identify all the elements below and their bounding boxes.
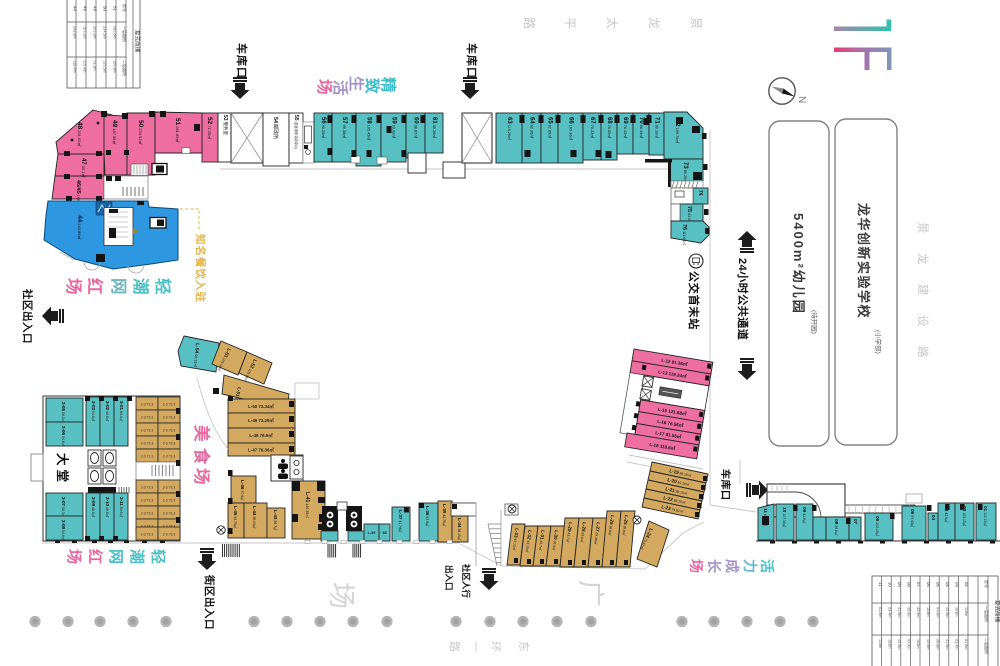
svg-text:东: 东: [517, 641, 530, 652]
svg-text:38: 38: [382, 531, 386, 535]
svg-text:潮: 潮: [128, 549, 146, 564]
svg-text:力: 力: [742, 559, 758, 573]
svg-text:龙华创新实验学校: 龙华创新实验学校: [856, 203, 871, 319]
svg-text:出入口: 出入口: [444, 565, 454, 591]
svg-text:42.9m: 42.9m: [926, 639, 930, 650]
svg-text:11: 11: [878, 582, 883, 587]
svg-text:社区人行: 社区人行: [461, 563, 471, 599]
svg-text:环: 环: [489, 641, 501, 652]
svg-text:房号: 房号: [984, 580, 990, 588]
svg-text:119.4m: 119.4m: [83, 60, 87, 72]
svg-text:63.4m: 63.4m: [955, 639, 959, 650]
svg-text:2-3 73.3: 2-3 73.3: [141, 429, 154, 433]
svg-text:L-50 73.34㎡: L-50 73.34㎡: [248, 403, 274, 409]
svg-text:5271.35㎡: 5271.35㎡: [206, 117, 213, 139]
svg-text:知名餐饮入驻: 知名餐饮入驻: [194, 234, 207, 303]
svg-text:97.4m: 97.4m: [907, 639, 911, 650]
svg-text:281.6m: 281.6m: [113, 26, 117, 39]
svg-text:2-1048.6㎡: 2-1048.6㎡: [105, 497, 110, 518]
svg-text:07: 07: [853, 519, 858, 525]
svg-text:路: 路: [448, 641, 461, 652]
svg-text:2-0948.0㎡: 2-0948.0㎡: [91, 497, 96, 518]
svg-text:设: 设: [916, 315, 929, 327]
svg-text:110m: 110m: [964, 607, 968, 616]
svg-text:2-3 73.3: 2-3 73.3: [163, 499, 176, 503]
svg-text:2-3 73.3: 2-3 73.3: [163, 455, 176, 459]
svg-text:2-3 73.3: 2-3 73.3: [163, 486, 176, 490]
svg-text:2-3 73.3: 2-3 73.3: [141, 403, 154, 407]
svg-text:潮: 潮: [131, 278, 151, 295]
svg-text:L-4670.9㎡: L-4670.9㎡: [240, 480, 245, 501]
svg-text:51281.65㎡: 51281.65㎡: [174, 118, 181, 142]
svg-text:42.9m: 42.9m: [916, 607, 920, 618]
svg-text:2-0654.6㎡: 2-0654.6㎡: [61, 426, 66, 447]
svg-text:场: 场: [64, 278, 83, 295]
svg-text:2-3 73.3: 2-3 73.3: [163, 416, 176, 420]
svg-text:2-0248.6㎡: 2-0248.6㎡: [105, 401, 110, 422]
svg-text:04: 04: [945, 582, 950, 587]
svg-text:L-4438.03㎡: L-4438.03㎡: [252, 506, 257, 529]
svg-text:2-3 73.3: 2-3 73.3: [141, 442, 154, 446]
svg-text:5400m²幼儿园: 5400m²幼儿园: [791, 213, 806, 315]
svg-text:2-3 73.3: 2-3 73.3: [141, 499, 154, 503]
svg-text:61.8m: 61.8m: [878, 607, 882, 618]
svg-text:48: 48: [93, 6, 98, 12]
svg-text:龙: 龙: [916, 253, 929, 265]
svg-text:活: 活: [759, 559, 775, 573]
svg-text:一: 一: [469, 641, 481, 652]
svg-text:243.8m: 243.8m: [73, 26, 77, 39]
svg-text:06: 06: [926, 582, 931, 587]
svg-text:L-4356.7㎡: L-4356.7㎡: [273, 510, 278, 531]
svg-text:10: 10: [887, 582, 892, 587]
svg-text:车库口: 车库口: [465, 43, 479, 79]
svg-text:2-3 73.3: 2-3 73.3: [163, 442, 176, 446]
svg-text:138.4m: 138.4m: [73, 60, 77, 73]
svg-text:2-0558.3㎡: 2-0558.3㎡: [61, 402, 66, 423]
svg-text:125.5m: 125.5m: [103, 60, 107, 73]
svg-text:03: 03: [955, 582, 960, 587]
svg-text:轻: 轻: [153, 278, 173, 295]
svg-text:50: 50: [103, 6, 108, 12]
svg-text:46: 46: [83, 6, 88, 12]
svg-text:平: 平: [563, 17, 577, 29]
svg-text:109.8m: 109.8m: [113, 60, 117, 73]
svg-text:路: 路: [522, 17, 537, 29]
svg-text:景: 景: [916, 222, 929, 234]
svg-text:53警务室: 53警务室: [222, 115, 229, 136]
svg-text:场: 场: [192, 468, 211, 485]
svg-text:2-3 73.3: 2-3 73.3: [141, 486, 154, 490]
svg-text:一层面积: 一层面积: [984, 606, 990, 622]
svg-text:2-3 73.3: 2-3 73.3: [141, 533, 154, 537]
svg-text:L-4553.73㎡: L-4553.73㎡: [233, 506, 238, 529]
svg-text:44: 44: [73, 6, 78, 12]
svg-text:103m: 103m: [916, 639, 920, 649]
svg-text:2-3 73.3: 2-3 73.3: [141, 416, 154, 420]
svg-text:广: 广: [575, 580, 605, 607]
svg-text:场: 场: [65, 549, 82, 564]
svg-text:103m: 103m: [955, 607, 959, 617]
svg-text:2-3 73.3: 2-3 73.3: [141, 455, 154, 459]
svg-text:2-0854.6㎡: 2-0854.6㎡: [61, 520, 66, 541]
svg-text:L-48 76.5㎡: L-48 76.5㎡: [249, 432, 273, 438]
svg-text:L-3667.9㎡: L-3667.9㎡: [425, 506, 430, 527]
svg-text:08: 08: [907, 582, 912, 587]
svg-text:复式商铺: 复式商铺: [994, 600, 1000, 623]
svg-text:食: 食: [192, 448, 212, 465]
svg-text:97.4m: 97.4m: [935, 607, 939, 618]
svg-text:07: 07: [916, 582, 921, 587]
svg-text:社区出入口: 社区出入口: [21, 288, 34, 344]
svg-text:轻: 轻: [149, 549, 167, 564]
svg-text:大堂: 大堂: [55, 453, 70, 486]
svg-text:L-49 73.29㎡: L-49 73.29㎡: [248, 417, 274, 423]
svg-text:L-3741.74㎡: L-3741.74㎡: [398, 510, 403, 533]
svg-text:41.9m: 41.9m: [897, 607, 901, 618]
svg-text:4790.1㎡: 4790.1㎡: [80, 158, 87, 177]
svg-text:41.9m: 41.9m: [945, 639, 949, 650]
svg-text:51: 51: [113, 6, 118, 12]
svg-text:05: 05: [935, 582, 940, 587]
svg-text:2-3 73.3: 2-3 73.3: [163, 403, 176, 407]
svg-text:二层面积: 二层面积: [122, 60, 128, 76]
svg-text:2-0163.4㎡: 2-0163.4㎡: [119, 401, 124, 422]
svg-text:车库口: 车库口: [235, 43, 249, 79]
svg-text:一层面积: 一层面积: [122, 26, 128, 42]
svg-text:L-3438.15㎡: L-3438.15㎡: [457, 518, 462, 541]
svg-text:公交首末站: 公交首末站: [687, 271, 701, 330]
svg-text:网: 网: [109, 278, 128, 295]
svg-text:44243.86㎡: 44243.86㎡: [76, 215, 83, 239]
svg-text:景: 景: [689, 17, 703, 29]
svg-text:车库口: 车库口: [719, 469, 732, 501]
svg-text:2-1154.6㎡: 2-1154.6㎡: [119, 497, 124, 518]
svg-text:(待开园): (待开园): [810, 310, 819, 334]
svg-text:54邮政所: 54邮政所: [272, 117, 279, 139]
svg-text:234.5m: 234.5m: [103, 26, 107, 39]
svg-text:42.9m: 42.9m: [897, 639, 901, 650]
svg-text:63.4m: 63.4m: [887, 607, 891, 618]
svg-text:61.8m: 61.8m: [964, 639, 968, 650]
svg-text:74: 74: [697, 190, 703, 196]
svg-text:场: 场: [315, 79, 333, 95]
svg-text:房号: 房号: [122, 4, 128, 12]
svg-text:路: 路: [916, 346, 930, 358]
svg-text:红: 红: [85, 278, 105, 295]
svg-text:103m: 103m: [926, 607, 930, 617]
svg-text:场: 场: [688, 559, 704, 573]
svg-text:29.8m: 29.8m: [907, 607, 911, 618]
svg-text:201.0m: 201.0m: [93, 26, 97, 39]
svg-text:02: 02: [964, 582, 969, 587]
svg-text:红: 红: [86, 549, 104, 564]
svg-text:建: 建: [916, 284, 930, 296]
svg-text:2-0354.0㎡: 2-0354.0㎡: [91, 401, 96, 422]
svg-text:网: 网: [107, 549, 124, 564]
svg-text:N: N: [796, 96, 807, 103]
svg-text:24小时公共通道: 24小时公共通道: [736, 258, 750, 340]
svg-text:42.9m: 42.9m: [945, 607, 949, 618]
svg-text:2-3 73.3: 2-3 73.3: [163, 512, 176, 516]
svg-text:107.2m: 107.2m: [83, 26, 87, 39]
svg-text:103m: 103m: [887, 639, 891, 649]
svg-text:龙: 龙: [647, 17, 661, 29]
svg-text:L-39: L-39: [368, 531, 376, 535]
svg-text:太: 太: [605, 17, 620, 29]
svg-text:场: 场: [326, 582, 356, 609]
svg-text:2-3 73.3: 2-3 73.3: [163, 533, 176, 537]
svg-text:(小学部): (小学部): [874, 330, 883, 354]
svg-text:L-47 76.36㎡: L-47 76.36㎡: [248, 447, 274, 453]
svg-text:美: 美: [192, 425, 212, 442]
svg-text:2-3 73.3: 2-3 73.3: [163, 429, 176, 433]
svg-text:L-3542.76㎡: L-3542.76㎡: [442, 504, 447, 527]
svg-text:2-0758.3㎡: 2-0758.3㎡: [61, 497, 66, 518]
svg-text:成: 成: [724, 559, 740, 573]
svg-text:29.8m: 29.8m: [935, 639, 939, 650]
svg-text:50234.53㎡: 50234.53㎡: [137, 120, 144, 144]
svg-text:110m: 110m: [878, 639, 882, 648]
svg-text:73.2m: 73.2m: [93, 60, 97, 71]
svg-text:街区出入口: 街区出入口: [203, 574, 216, 630]
svg-text:长: 长: [706, 559, 722, 574]
svg-text:2-3 73.3: 2-3 73.3: [141, 512, 154, 516]
svg-text:04: 04: [931, 515, 936, 521]
svg-text:48201.02㎡: 48201.02㎡: [76, 122, 83, 146]
svg-text:精: 精: [379, 77, 398, 93]
svg-text:09: 09: [897, 582, 902, 587]
svg-text:复式商铺: 复式商铺: [134, 30, 142, 53]
svg-text:二层面积: 二层面积: [984, 638, 990, 654]
svg-text:49187.68㎡: 49187.68㎡: [111, 120, 118, 144]
